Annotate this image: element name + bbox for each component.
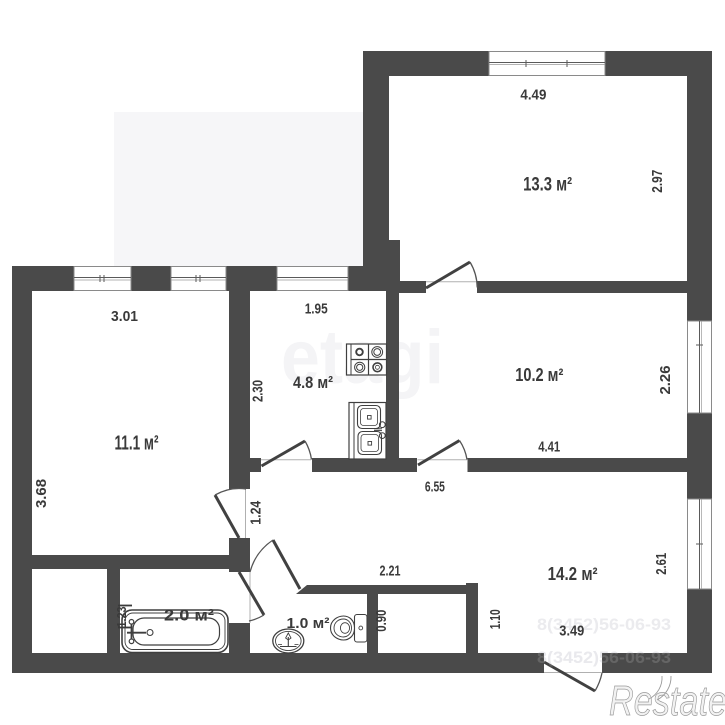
svg-text:3.68: 3.68 bbox=[33, 479, 50, 508]
svg-text:6.55: 6.55 bbox=[425, 479, 445, 496]
svg-text:2.97: 2.97 bbox=[649, 170, 666, 193]
svg-text:3.01: 3.01 bbox=[111, 308, 138, 325]
svg-text:0.90: 0.90 bbox=[373, 610, 390, 632]
svg-text:8(3452)56-06-93: 8(3452)56-06-93 bbox=[537, 615, 671, 634]
svg-text:1.23: 1.23 bbox=[114, 607, 129, 628]
svg-text:11.1 м²: 11.1 м² bbox=[115, 433, 159, 455]
svg-text:13.3 м²: 13.3 м² bbox=[523, 175, 572, 196]
svg-text:2.21: 2.21 bbox=[380, 562, 401, 579]
svg-text:1.95: 1.95 bbox=[305, 301, 328, 318]
svg-text:1.0 м²: 1.0 м² bbox=[287, 615, 330, 632]
svg-text:2.0 м²: 2.0 м² bbox=[164, 608, 214, 625]
svg-text:1.24: 1.24 bbox=[248, 500, 265, 525]
svg-text:8(3452)56-06-93: 8(3452)56-06-93 bbox=[537, 648, 671, 667]
svg-text:3.49: 3.49 bbox=[559, 623, 584, 640]
svg-text:4.41: 4.41 bbox=[538, 439, 560, 456]
svg-text:14.2 м²: 14.2 м² bbox=[548, 564, 598, 584]
svg-text:4.8 м²: 4.8 м² bbox=[293, 374, 333, 392]
svg-text:2.26: 2.26 bbox=[657, 366, 674, 395]
svg-text:10.2 м²: 10.2 м² bbox=[515, 365, 563, 385]
svg-text:Restate: Restate bbox=[609, 677, 725, 724]
svg-text:4.49: 4.49 bbox=[520, 87, 546, 104]
svg-text:2.30: 2.30 bbox=[250, 380, 267, 402]
svg-text:1.10: 1.10 bbox=[487, 609, 504, 629]
svg-text:2.61: 2.61 bbox=[653, 553, 670, 575]
